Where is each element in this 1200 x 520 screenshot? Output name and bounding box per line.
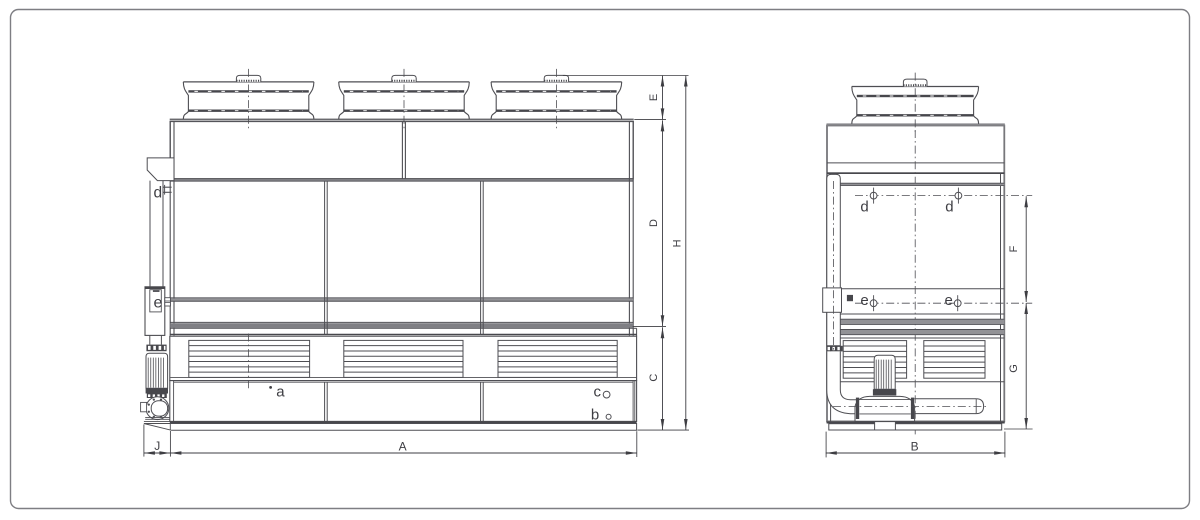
svg-text:c: c — [593, 384, 601, 401]
svg-text:d: d — [945, 199, 953, 216]
svg-text:J: J — [154, 439, 160, 453]
svg-text:C: C — [648, 374, 660, 382]
svg-text:G: G — [1008, 364, 1020, 373]
svg-text:a: a — [276, 384, 285, 401]
svg-text:d: d — [153, 184, 162, 201]
svg-text:E: E — [648, 94, 660, 101]
svg-text:e: e — [860, 292, 868, 309]
svg-text:F: F — [1008, 245, 1020, 252]
svg-text:e: e — [154, 294, 163, 311]
svg-text:B: B — [911, 440, 919, 454]
svg-text:b: b — [591, 406, 599, 423]
svg-text:D: D — [648, 219, 660, 227]
svg-text:H: H — [671, 239, 683, 247]
svg-text:A: A — [399, 440, 407, 454]
svg-text:e: e — [945, 292, 953, 309]
svg-text:d: d — [860, 199, 868, 216]
